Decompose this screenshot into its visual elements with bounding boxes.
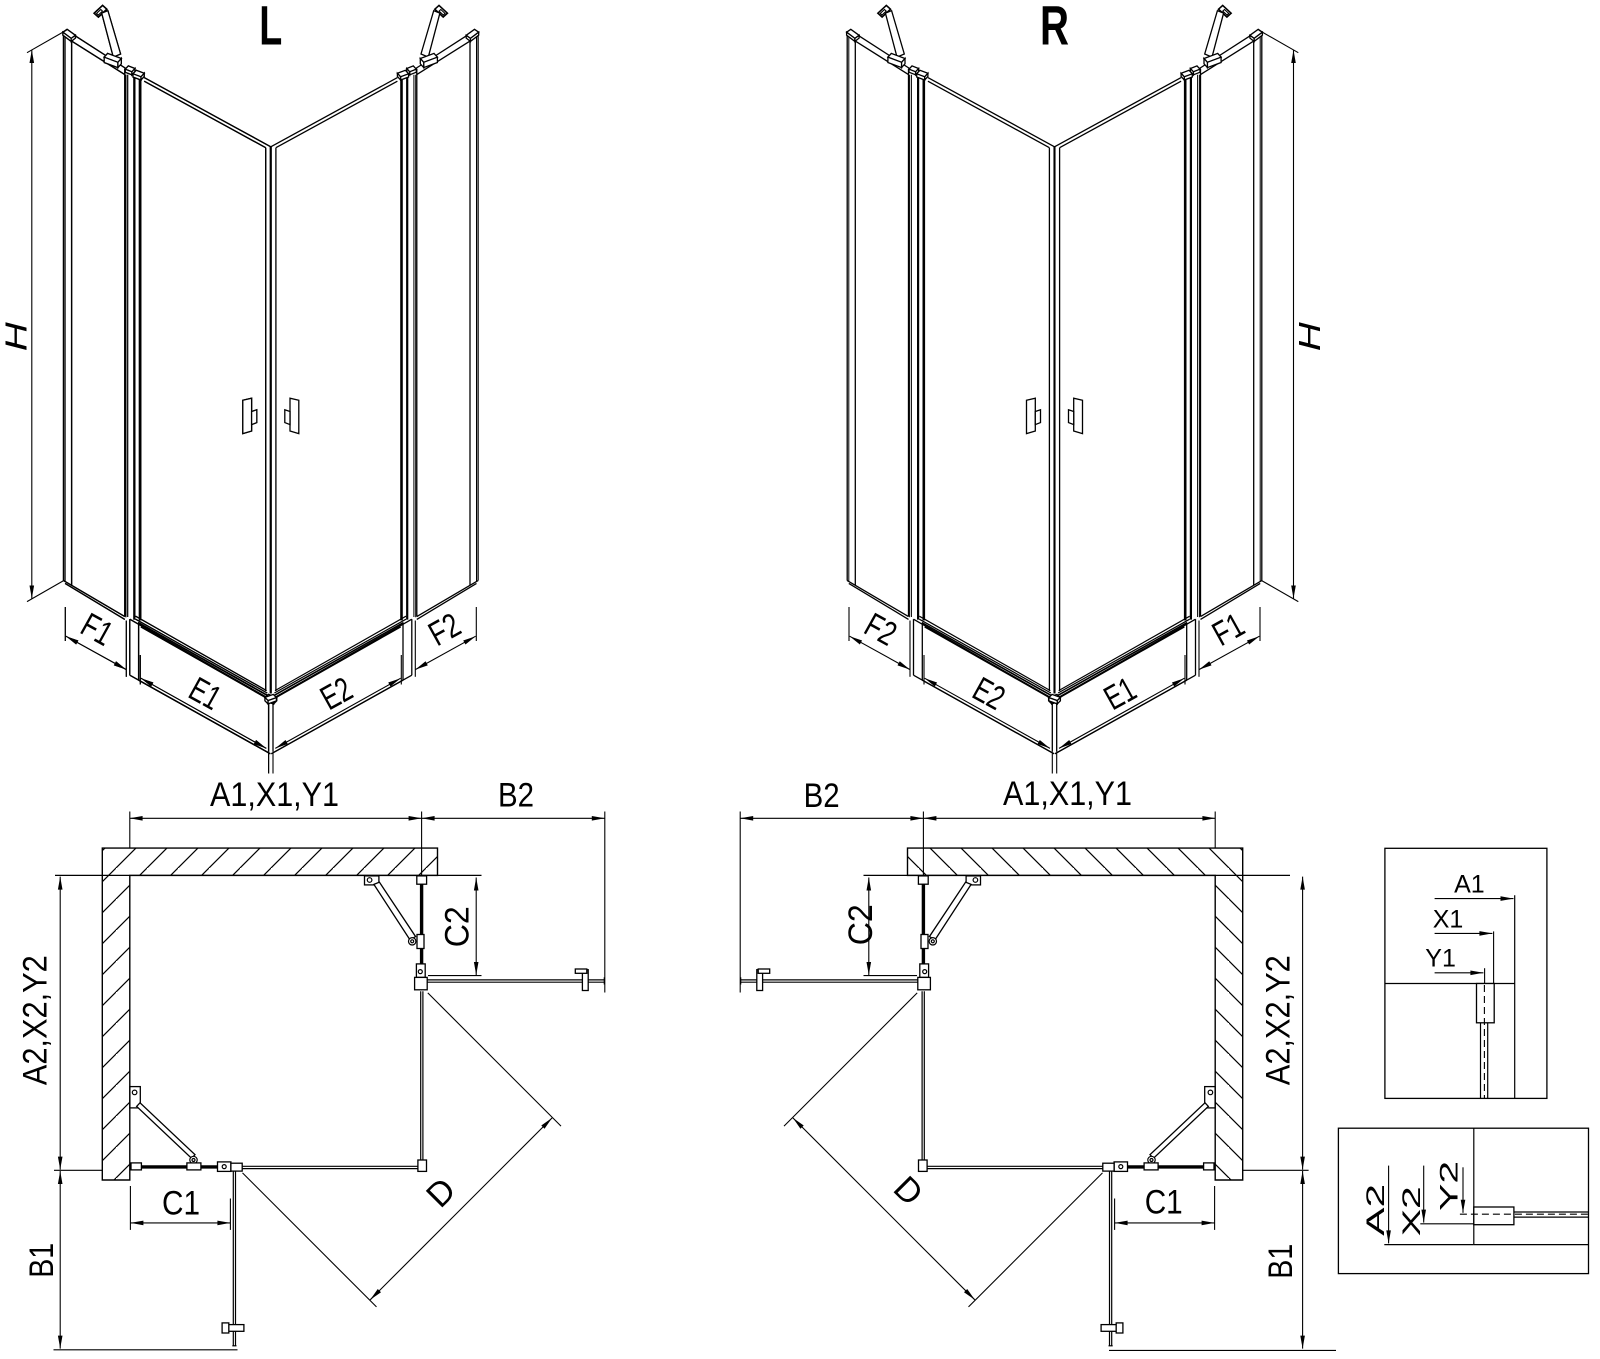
svg-text:A1,X1,Y1: A1,X1,Y1 <box>210 776 339 814</box>
svg-text:C2: C2 <box>842 904 880 945</box>
svg-text:A2,X2,Y2: A2,X2,Y2 <box>1260 955 1298 1085</box>
svg-text:A2: A2 <box>1362 1184 1390 1236</box>
svg-text:B2: B2 <box>804 777 840 815</box>
svg-text:B1: B1 <box>23 1243 61 1278</box>
svg-text:R: R <box>1040 0 1069 57</box>
svg-text:Y1: Y1 <box>1425 944 1456 972</box>
svg-text:C2: C2 <box>439 906 477 947</box>
svg-text:B2: B2 <box>498 777 534 815</box>
svg-text:Y2: Y2 <box>1435 1161 1463 1211</box>
svg-text:C1: C1 <box>162 1185 200 1223</box>
svg-text:C1: C1 <box>1145 1184 1183 1222</box>
svg-text:L: L <box>259 0 282 57</box>
svg-text:X1: X1 <box>1433 906 1464 934</box>
svg-text:X2: X2 <box>1398 1186 1426 1236</box>
svg-text:H: H <box>0 322 33 352</box>
svg-text:A1,X1,Y1: A1,X1,Y1 <box>1003 775 1132 813</box>
svg-text:A1: A1 <box>1454 871 1485 899</box>
svg-text:A2,X2,Y2: A2,X2,Y2 <box>17 955 55 1085</box>
svg-text:H: H <box>1292 322 1327 352</box>
svg-text:B1: B1 <box>1262 1244 1300 1279</box>
